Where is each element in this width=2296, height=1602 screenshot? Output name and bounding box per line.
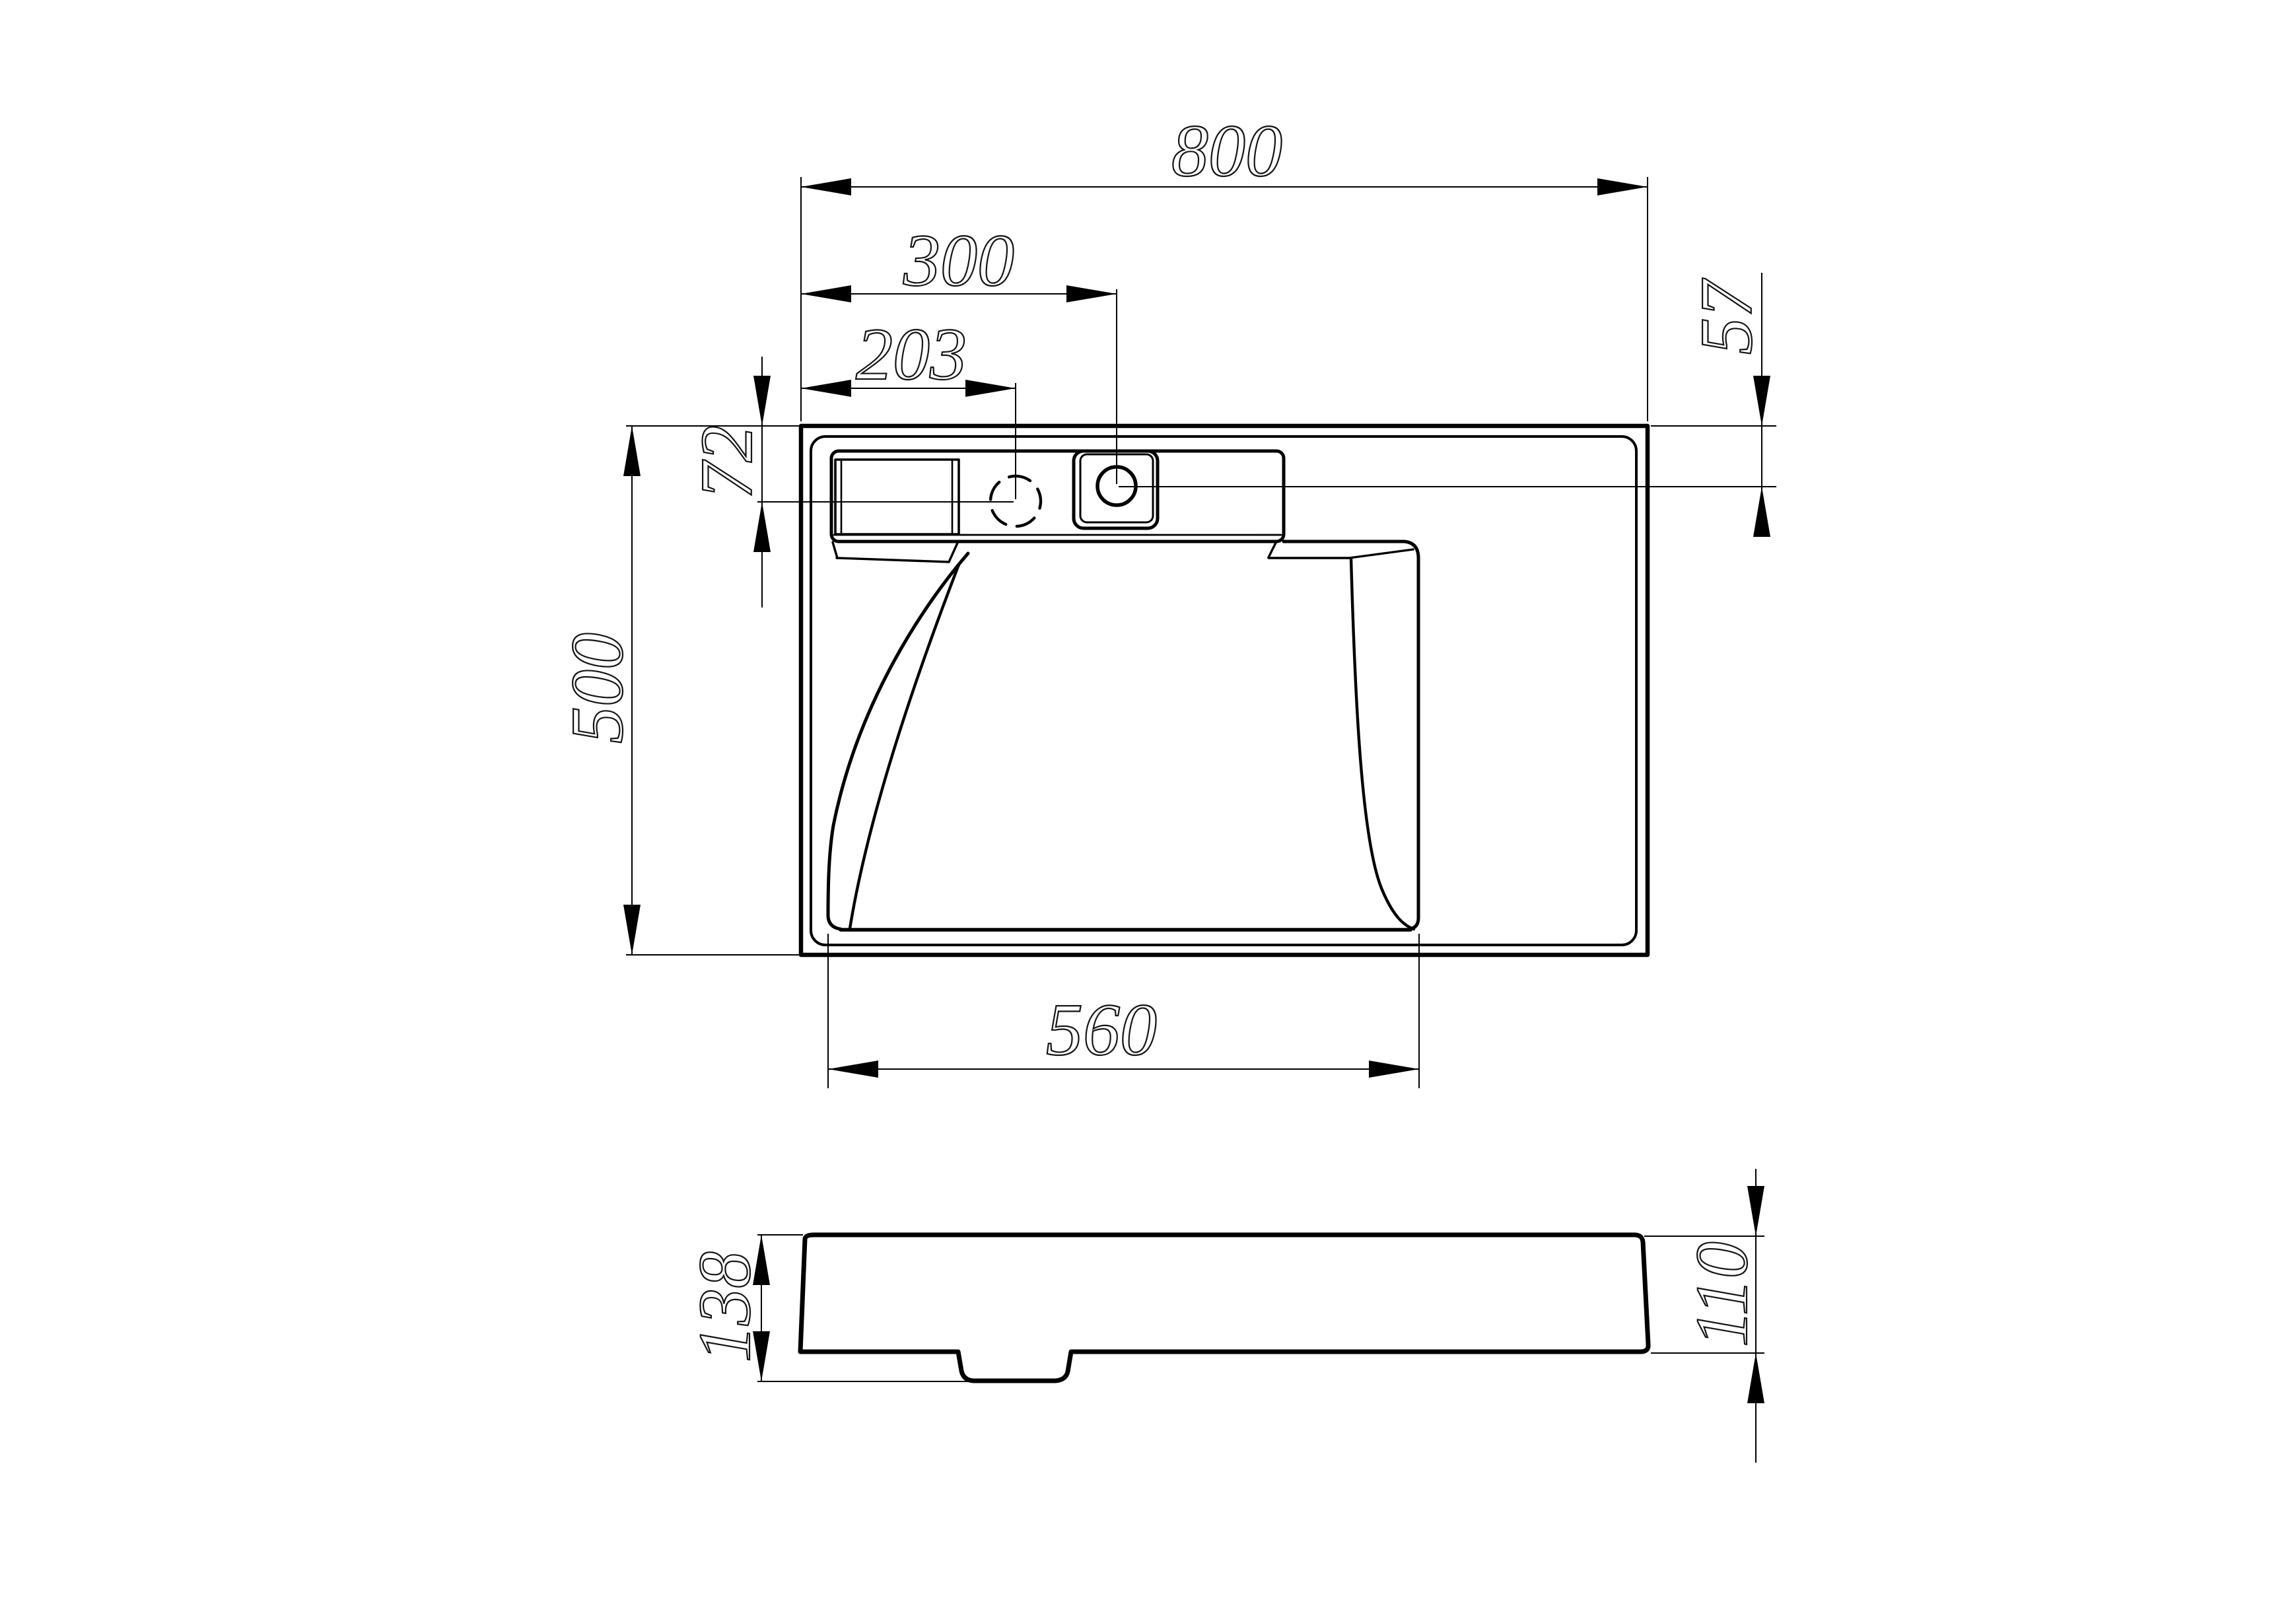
arrowheads xyxy=(623,178,1770,1403)
dimension-labels: 800 300 203 57 72 500 560 138 110 xyxy=(557,110,1768,1362)
sink-inner-rim xyxy=(811,436,1636,945)
basin-left-wall-inner xyxy=(850,565,959,928)
dim-500-label: 500 xyxy=(557,633,639,744)
arrow xyxy=(1747,1186,1764,1236)
dim-300-label: 300 xyxy=(903,220,1014,302)
dim-560-label: 560 xyxy=(1046,989,1157,1071)
dim-57-label: 57 xyxy=(1686,278,1768,355)
mouth-left-underside xyxy=(837,558,949,562)
arrow xyxy=(1753,376,1770,426)
arrow xyxy=(801,178,851,195)
arrow xyxy=(753,376,771,426)
arrow xyxy=(828,1061,878,1078)
arrow xyxy=(1066,285,1117,302)
dim-800-label: 800 xyxy=(1171,110,1282,192)
arrow xyxy=(801,380,851,397)
arrow xyxy=(1747,1353,1764,1403)
soap-tray xyxy=(835,460,959,534)
arrow xyxy=(1753,487,1770,537)
mouth-left-corner xyxy=(833,542,837,558)
dim-138-label: 138 xyxy=(684,1251,766,1362)
arrow xyxy=(623,426,641,476)
arrow xyxy=(1369,1061,1419,1078)
dimensions xyxy=(626,177,1776,1463)
arrow xyxy=(753,502,771,552)
technical-drawing: 800 300 203 57 72 500 560 138 110 xyxy=(0,0,2296,1602)
ledge-underside-diagonal xyxy=(1349,549,1413,558)
arrow xyxy=(623,905,641,955)
dim-72-label: 72 xyxy=(686,425,768,499)
arrow xyxy=(801,285,851,302)
drawing-page: 800 300 203 57 72 500 560 138 110 xyxy=(0,0,2296,1602)
dim-110-label: 110 xyxy=(1681,1241,1763,1347)
mouth-left-notch xyxy=(949,541,958,562)
sink-outer-outline xyxy=(801,426,1648,955)
basin-right-wall-inner xyxy=(1351,559,1414,929)
arrow xyxy=(965,380,1016,397)
arrow xyxy=(1597,178,1648,195)
side-view xyxy=(800,1235,1648,1381)
dim-203-label: 203 xyxy=(856,314,967,396)
faucet-deck xyxy=(831,451,1284,541)
side-profile-outline xyxy=(800,1235,1648,1381)
faucet-platform-outer xyxy=(1074,451,1158,528)
top-view xyxy=(801,426,1648,955)
mouth-right-notch xyxy=(1269,541,1276,557)
